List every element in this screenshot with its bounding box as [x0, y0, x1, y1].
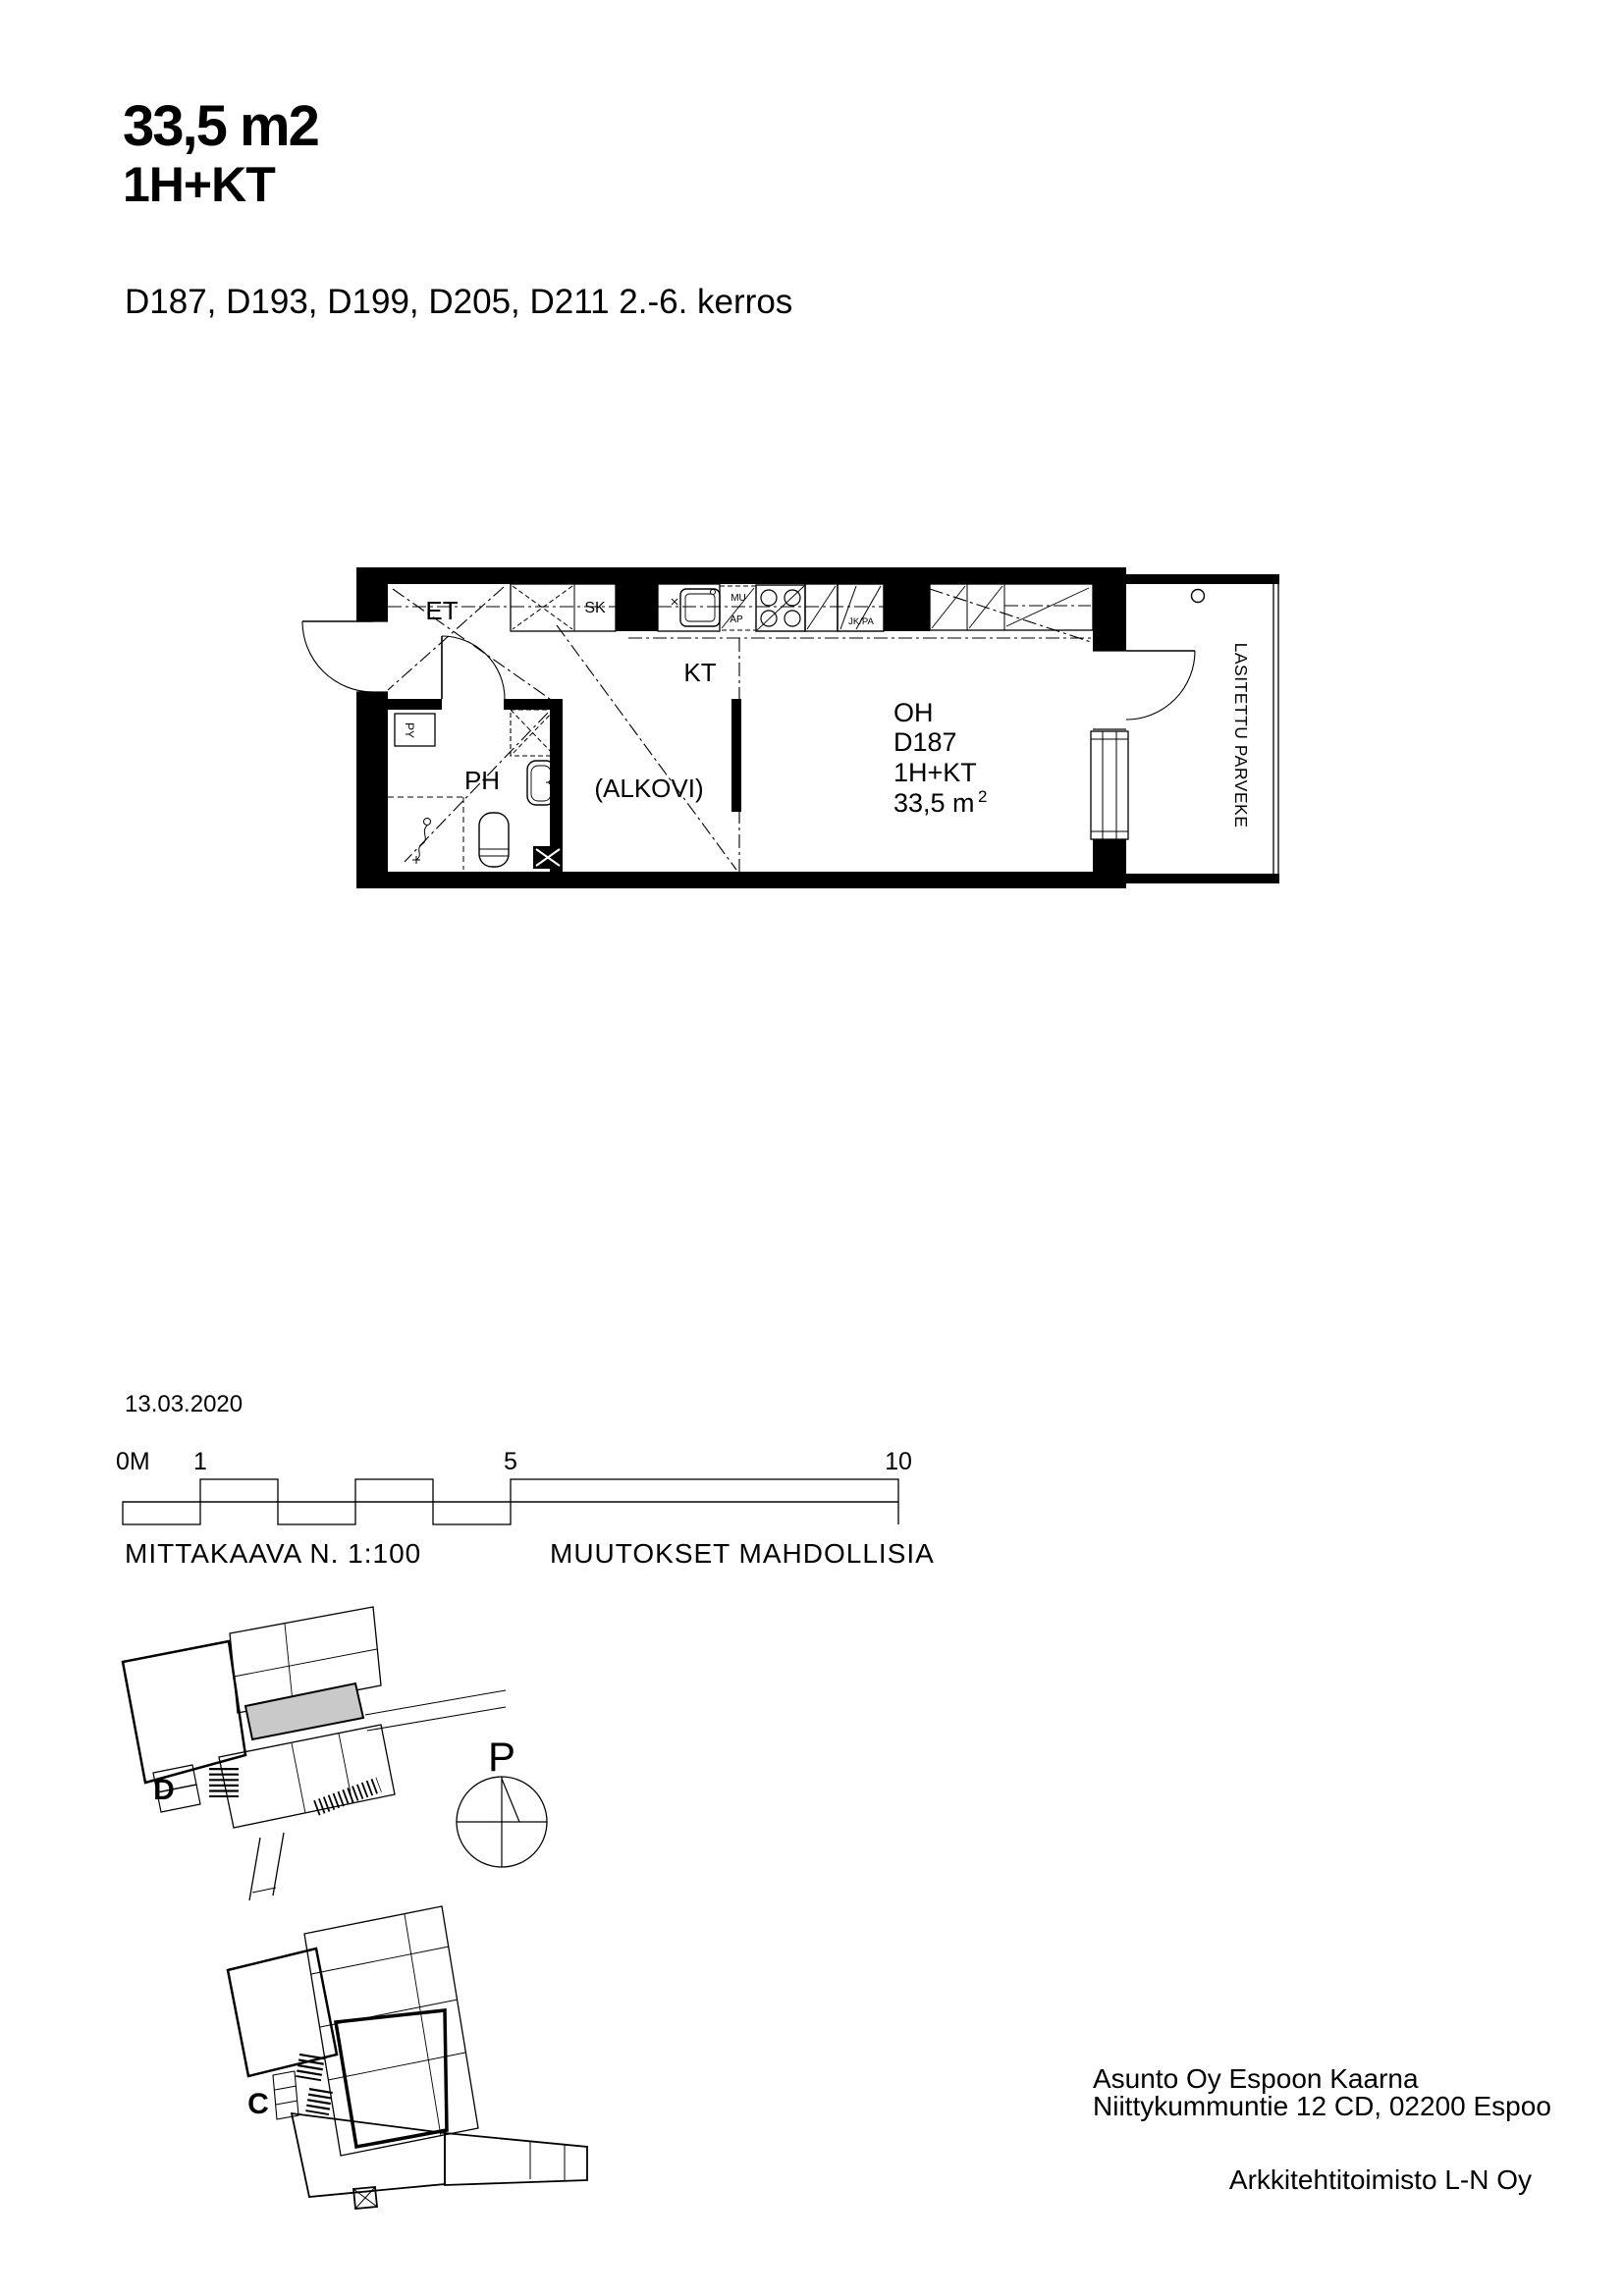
page-title-type: 1H+KT [123, 160, 275, 209]
scale-tick-1: 1 [193, 1448, 207, 1475]
label-unit-id: D187 [893, 727, 957, 757]
label-building-c: C [247, 2088, 269, 2120]
walls [356, 567, 1279, 888]
footer-address: Niittykummuntie 12 CD, 02200 Espoo [1093, 2093, 1551, 2120]
label-bath: PH [464, 766, 500, 795]
stairwell-hatch-c1 [308, 2056, 312, 2079]
balcony-window [1091, 731, 1128, 839]
scale-tick-10: 10 [885, 1448, 912, 1475]
scale-bar-ticks: 0M 1 5 10 [116, 1448, 912, 1475]
changes-note: MUUTOKSET MAHDOLLISIA [550, 1538, 935, 1570]
floor-drain [424, 819, 431, 826]
doors [302, 621, 1195, 729]
label-unit-type: 1H+KT [893, 758, 977, 787]
scale-note: MITTAKAAVA N. 1:100 [125, 1538, 421, 1570]
label-closet: SK [584, 600, 606, 616]
label-kitchen: KT [683, 658, 716, 687]
label-dishwasher: AP [730, 614, 743, 625]
label-building-d: D [153, 1774, 175, 1806]
building-d: D [123, 1607, 506, 1900]
label-unit-area: 33,5 m [893, 788, 975, 818]
label-laundry: PY [403, 722, 416, 738]
label-north: P [488, 1734, 515, 1780]
stairwell-hatch-c2 [317, 2090, 321, 2113]
toilet [479, 813, 509, 867]
scale-bar: 0M 1 5 10 [108, 1443, 923, 1541]
footer-company: Asunto Oy Espoon Kaarna [1093, 2065, 1419, 2093]
scale-tick-0: 0M [116, 1448, 150, 1475]
site-plan: D C P [49, 1590, 677, 2296]
north-compass: P [457, 1734, 547, 1867]
label-unit-area-sup: 2 [978, 787, 987, 806]
label-micro: MU [731, 593, 746, 604]
balcony-door-swing [1126, 651, 1195, 720]
drawing-date: 13.03.2020 [125, 1391, 243, 1418]
apartment-list-subtitle: D187, D193, D199, D205, D211 2.-6. kerro… [125, 283, 792, 322]
label-alcove: (ALKOVI) [594, 774, 703, 803]
building-c: C [228, 1906, 587, 2209]
page-title-area: 33,5 m2 [123, 98, 318, 155]
north-needle [502, 1779, 519, 1822]
balcony-drain-circle [1192, 590, 1205, 603]
plan-sheet: 33,5 m2 1H+KT D187, D193, D199, D205, D2… [0, 0, 1624, 2296]
label-living: OH [893, 698, 934, 727]
entrance-door-swing [302, 621, 373, 692]
scale-tick-5: 5 [504, 1448, 517, 1475]
wardrobes [930, 584, 1093, 630]
label-entry: ET [425, 596, 458, 625]
footer-architect: Arkkitehtitoimisto L-N Oy [1080, 2166, 1532, 2194]
balcony-railing-hatch [316, 1785, 379, 1808]
floor-plan: ET SK MU AP JK/PA KT (ALKOVI) PH PY OH D… [295, 550, 1306, 923]
scale-bar-boxes [123, 1479, 898, 1524]
label-balcony: LASITETTU PARVEKE [1231, 643, 1251, 828]
highlighted-unit [245, 1683, 363, 1739]
label-fridge: JK/PA [848, 616, 874, 627]
